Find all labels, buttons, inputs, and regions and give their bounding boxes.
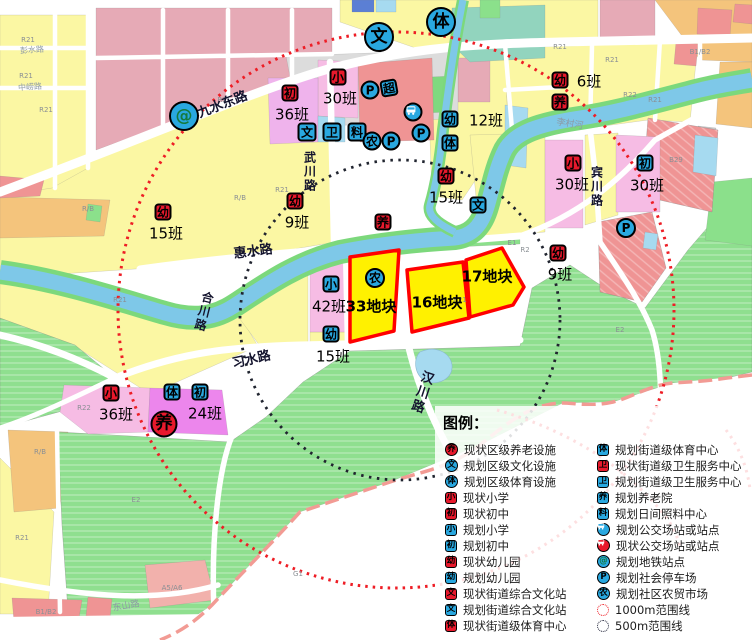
legend-item: 体规划街道级体育中心 bbox=[597, 442, 719, 457]
legend-item: 幼规划幼儿园 bbox=[445, 570, 521, 585]
daycare-icon: 料 bbox=[597, 508, 609, 520]
legend-item-label: 1000m范围线 bbox=[615, 602, 690, 618]
culture-icon: 文 bbox=[445, 604, 457, 616]
legend-item: 养现状区级养老设施 bbox=[445, 442, 556, 457]
junior-high-icon: 初 bbox=[445, 540, 457, 552]
bus-stop-icon bbox=[597, 539, 610, 552]
legend-panel: 图例： 养现状区级养老设施文规划区级文化设施体规划区级体育设施小现状小学初现状初… bbox=[435, 406, 752, 640]
legend-item: P规划社会停车场 bbox=[597, 570, 697, 585]
planning-map: R21R21R21R2R/BR/BR21R21R21R22R21R21R22R2… bbox=[0, 0, 752, 640]
legend-item-label: 规划初中 bbox=[463, 538, 509, 554]
primary-school-icon: 小 bbox=[445, 492, 457, 504]
legend-item: 500m范围线 bbox=[597, 618, 683, 633]
legend-item: 料规划日间照料中心 bbox=[597, 506, 707, 521]
legend-item-label: 规划区级体育设施 bbox=[464, 474, 556, 490]
range-1000m-icon bbox=[597, 604, 609, 616]
sports-icon: 体 bbox=[597, 444, 609, 456]
legend-item: 农规划社区农贸市场 bbox=[597, 586, 708, 601]
kindergarten-icon: 幼 bbox=[445, 572, 457, 584]
legend-item: 1000m范围线 bbox=[597, 602, 690, 617]
kindergarten-icon: 幼 bbox=[445, 556, 457, 568]
legend-item: 小现状小学 bbox=[445, 490, 509, 505]
legend-item: 现状公交场站或站点 bbox=[597, 538, 720, 553]
culture-icon: 文 bbox=[445, 588, 457, 600]
legend-item: 小规划小学 bbox=[445, 522, 509, 537]
legend-item: 文现状街道综合文化站 bbox=[445, 586, 567, 601]
legend-item: 文规划街道综合文化站 bbox=[445, 602, 567, 617]
legend-item-label: 规划街道综合文化站 bbox=[463, 602, 567, 618]
junior-high-icon: 初 bbox=[445, 508, 457, 520]
legend-item-label: 现状区级养老设施 bbox=[464, 442, 556, 458]
legend-item-label: 规划日间照料中心 bbox=[615, 506, 707, 522]
legend-item-label: 规划幼儿园 bbox=[463, 570, 521, 586]
site-parcel-16 bbox=[407, 262, 469, 332]
legend-title: 图例： bbox=[443, 412, 488, 433]
culture-icon: 文 bbox=[445, 459, 458, 472]
legend-item-label: 规划街道级卫生服务中心 bbox=[615, 474, 742, 490]
legend-item-label: 规划区级文化设施 bbox=[464, 458, 556, 474]
legend-item: 规划公交场站或站点 bbox=[597, 522, 720, 537]
legend-item: 体规划区级体育设施 bbox=[445, 474, 556, 489]
legend-item-label: 规划街道级体育中心 bbox=[615, 442, 719, 458]
legend-item-label: 现状幼儿园 bbox=[463, 554, 521, 570]
pond bbox=[416, 349, 452, 382]
primary-school-icon: 小 bbox=[445, 524, 457, 536]
farmers-market-icon: 农 bbox=[597, 587, 610, 600]
legend-item: 文规划区级文化设施 bbox=[445, 458, 556, 473]
legend-item: 初规划初中 bbox=[445, 538, 509, 553]
legend-item: 卫现状街道级卫生服务中心 bbox=[597, 458, 742, 473]
health-center-icon: 卫 bbox=[597, 460, 609, 472]
legend-item-label: 现状街道级卫生服务中心 bbox=[615, 458, 742, 474]
elder-care-icon: 养 bbox=[445, 443, 458, 456]
legend-item-label: 规划地铁站点 bbox=[616, 554, 685, 570]
legend-item-label: 规划社区农贸市场 bbox=[616, 586, 708, 602]
legend-item: 卫规划街道级卫生服务中心 bbox=[597, 474, 742, 489]
legend-item-label: 现状街道综合文化站 bbox=[463, 586, 567, 602]
site-parcel-33 bbox=[350, 250, 399, 342]
sports-icon: 体 bbox=[445, 475, 458, 488]
legend-item-label: 规划公交场站或站点 bbox=[616, 522, 720, 538]
parking-icon: P bbox=[597, 571, 610, 584]
bus-stop-icon bbox=[597, 523, 610, 536]
range-500m-icon bbox=[597, 620, 609, 632]
legend-item-label: 现状公交场站或站点 bbox=[616, 538, 720, 554]
legend-item: @规划地铁站点 bbox=[597, 554, 685, 569]
sports-icon: 体 bbox=[445, 620, 457, 632]
legend-item-label: 规划小学 bbox=[463, 522, 509, 538]
legend-item-label: 现状街道级体育中心 bbox=[463, 618, 567, 634]
legend-item-label: 现状小学 bbox=[463, 490, 509, 506]
legend-item: 幼现状幼儿园 bbox=[445, 554, 521, 569]
legend-item: 初现状初中 bbox=[445, 506, 509, 521]
legend-item-label: 现状初中 bbox=[463, 506, 509, 522]
legend-item-label: 规划养老院 bbox=[615, 490, 673, 506]
legend-item: 养规划养老院 bbox=[597, 490, 673, 505]
health-center-icon: 卫 bbox=[597, 476, 609, 488]
elder-care-icon: 养 bbox=[597, 492, 609, 504]
metro-station-icon: @ bbox=[597, 555, 610, 568]
legend-item-label: 500m范围线 bbox=[615, 618, 683, 634]
legend-item: 体现状街道级体育中心 bbox=[445, 618, 567, 633]
legend-item-label: 规划社会停车场 bbox=[616, 570, 697, 586]
